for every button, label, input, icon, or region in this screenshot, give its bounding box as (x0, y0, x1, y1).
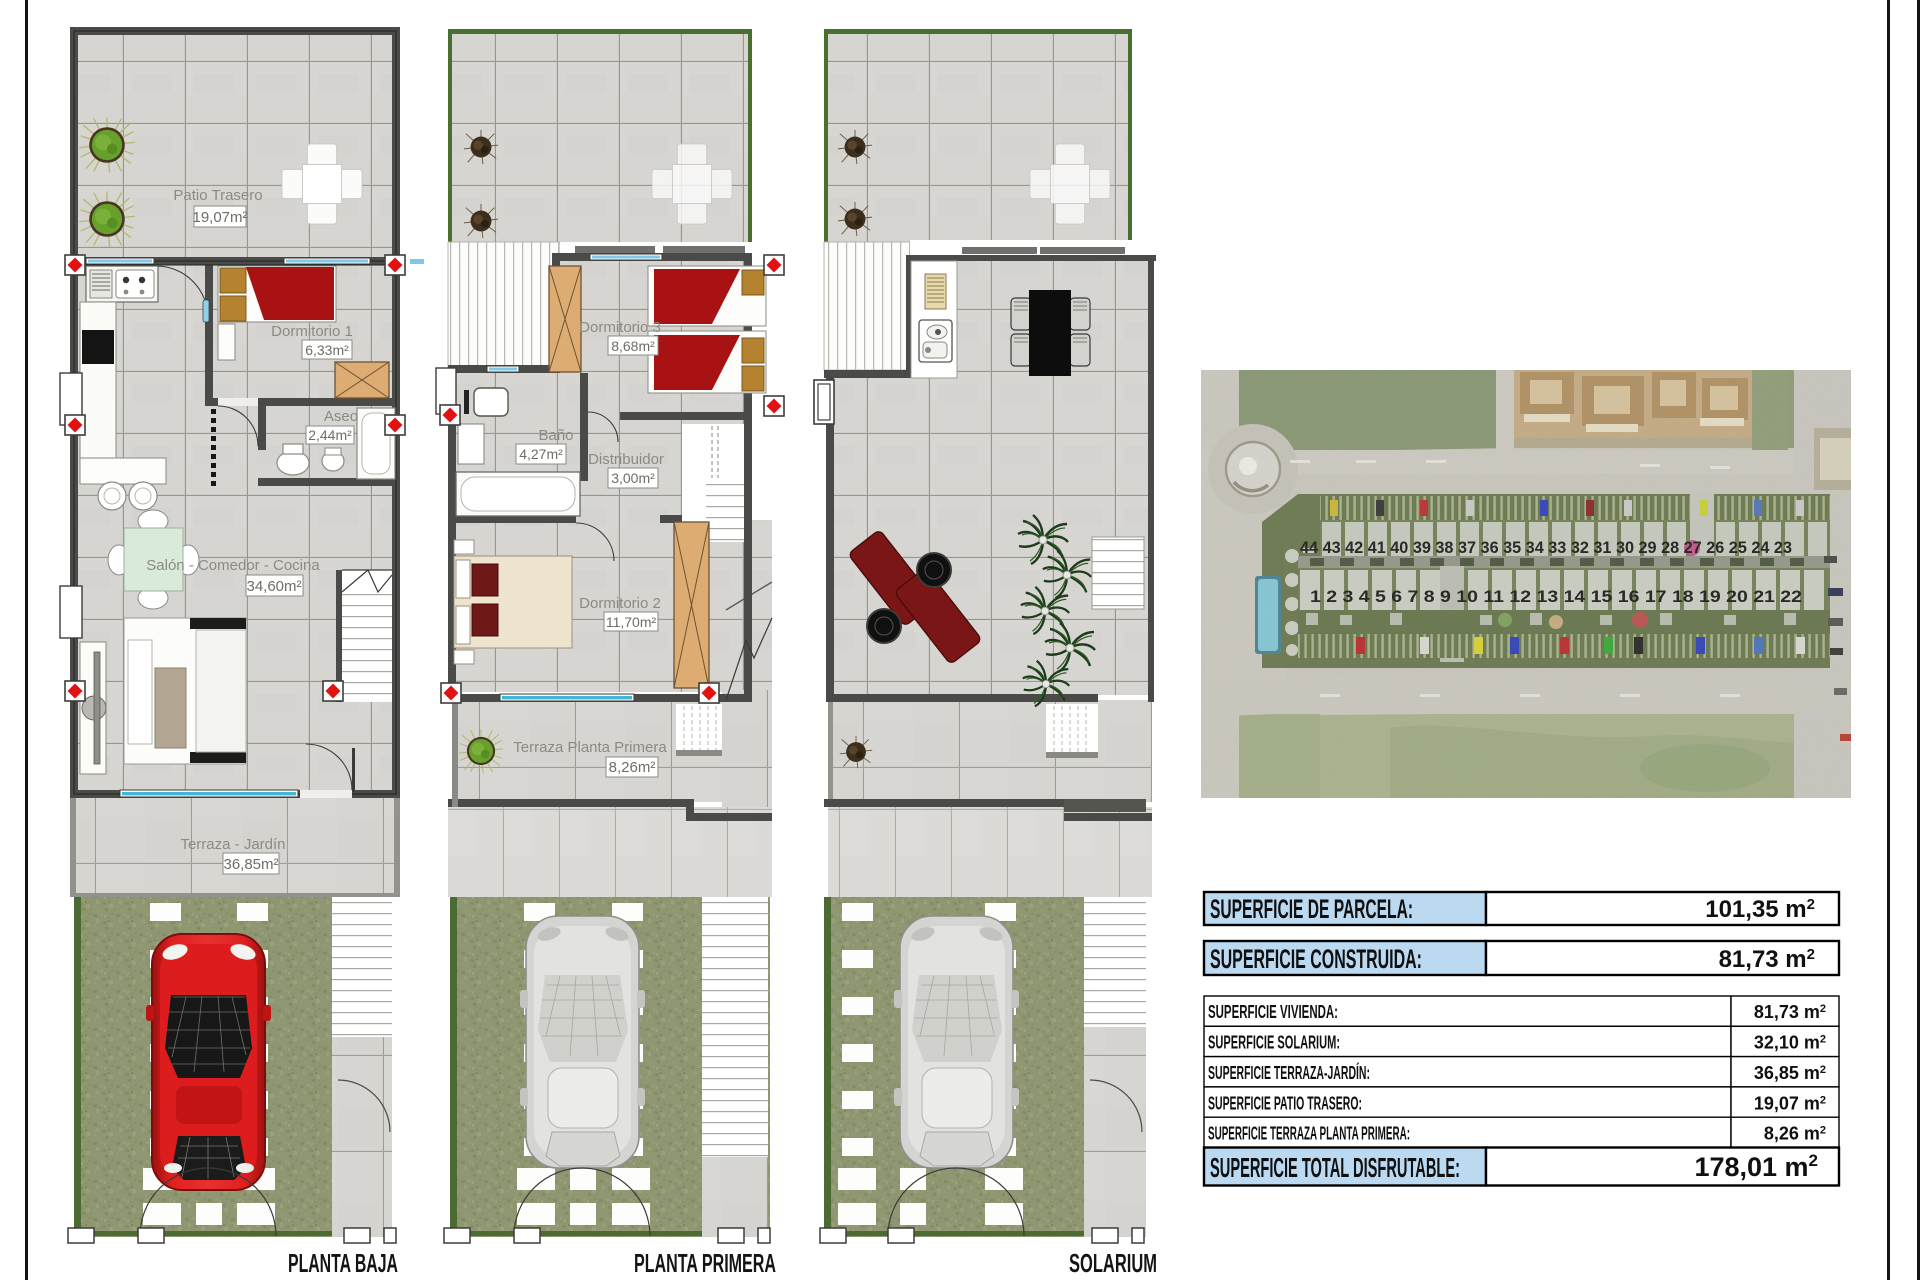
svg-text:Distribuidor: Distribuidor (588, 451, 664, 468)
svg-text:Salón - Comedor - Cocina: Salón - Comedor - Cocina (146, 557, 320, 574)
svg-text:Dormitorio 3: Dormitorio 3 (579, 319, 661, 336)
svg-text:Aseo: Aseo (324, 408, 358, 425)
svg-text:3,00m²: 3,00m² (611, 470, 655, 486)
svg-text:178,01 m2: 178,01 m2 (1694, 1151, 1818, 1182)
svg-text:Dormitorio 2: Dormitorio 2 (579, 595, 661, 612)
svg-text:19,07m²: 19,07m² (192, 209, 247, 226)
svg-text:81,73 m2: 81,73 m2 (1754, 1002, 1826, 1022)
svg-text:SOLARIUM: SOLARIUM (1069, 1248, 1157, 1278)
svg-text:SUPERFICIE PATIO TRASERO:: SUPERFICIE PATIO TRASERO: (1208, 1093, 1362, 1113)
svg-text:34,60m²: 34,60m² (246, 578, 301, 595)
svg-text:SUPERFICIE VIVIENDA:: SUPERFICIE VIVIENDA: (1208, 1002, 1338, 1022)
svg-text:SUPERFICIE TOTAL DISFRUTABLE:: SUPERFICIE TOTAL DISFRUTABLE: (1210, 1152, 1460, 1183)
svg-text:6,33m²: 6,33m² (305, 342, 349, 358)
svg-text:8,68m²: 8,68m² (611, 338, 655, 354)
svg-text:8,26m²: 8,26m² (609, 759, 656, 776)
svg-text:8,26 m2: 8,26 m2 (1764, 1124, 1826, 1144)
svg-text:19,07 m2: 19,07 m2 (1754, 1093, 1826, 1113)
svg-text:PLANTA BAJA: PLANTA BAJA (288, 1248, 398, 1278)
svg-text:SUPERFICIE CONSTRUIDA:: SUPERFICIE CONSTRUIDA: (1210, 944, 1422, 974)
svg-text:81,73 m2: 81,73 m2 (1719, 946, 1815, 973)
svg-text:Baño: Baño (538, 427, 573, 444)
svg-text:Terraza Planta Primera: Terraza Planta Primera (513, 739, 667, 756)
svg-text:SUPERFICIE DE PARCELA:: SUPERFICIE DE PARCELA: (1210, 894, 1413, 924)
svg-text:2,44m²: 2,44m² (308, 427, 352, 443)
svg-text:36,85 m2: 36,85 m2 (1754, 1063, 1826, 1083)
svg-text:4,27m²: 4,27m² (519, 446, 563, 462)
svg-text:36,85m²: 36,85m² (223, 856, 278, 873)
svg-text:PLANTA PRIMERA: PLANTA PRIMERA (634, 1248, 776, 1278)
svg-text:Dormitorio 1: Dormitorio 1 (271, 323, 353, 340)
svg-text:SUPERFICIE TERRAZA PLANTA PRIM: SUPERFICIE TERRAZA PLANTA PRIMERA: (1208, 1124, 1410, 1144)
svg-text:Patio Trasero: Patio Trasero (173, 187, 262, 204)
svg-text:Terraza - Jardín: Terraza - Jardín (180, 836, 285, 853)
svg-text:SUPERFICIE TERRAZA-JARDÍN:: SUPERFICIE TERRAZA-JARDÍN: (1208, 1062, 1370, 1083)
svg-text:101,35 m2: 101,35 m2 (1705, 896, 1815, 923)
svg-text:32,10 m2: 32,10 m2 (1754, 1033, 1826, 1053)
svg-text:SUPERFICIE SOLARIUM:: SUPERFICIE SOLARIUM: (1208, 1033, 1340, 1053)
svg-text:11,70m²: 11,70m² (606, 614, 657, 630)
